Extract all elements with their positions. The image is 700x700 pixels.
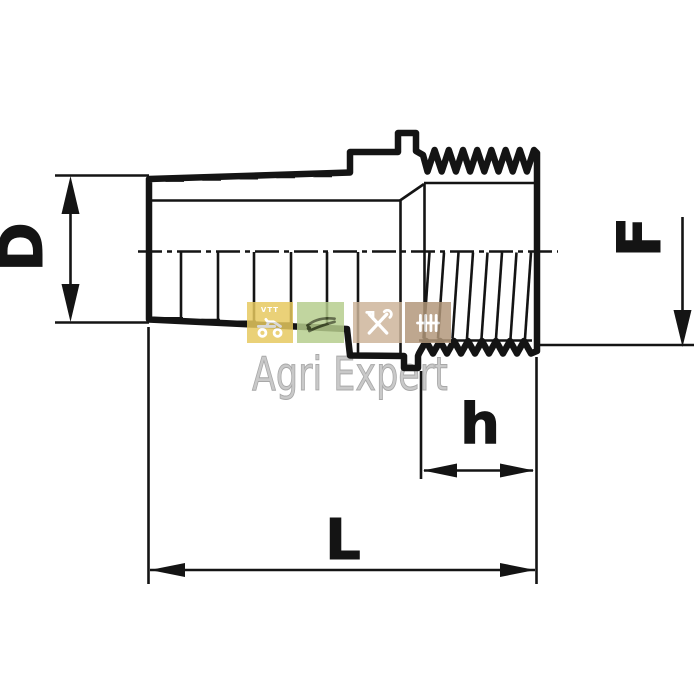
dimension-label-f: F [608,205,672,269]
dimension-label-h: h [448,392,512,456]
watermark-square-shears [297,302,344,343]
quad-bike-icon [256,315,284,339]
watermark-square-rake [405,302,451,343]
h-arrowhead-right [500,464,534,478]
f-arrowhead [674,310,692,347]
technical-drawing-page: Agri Expert [0,0,700,700]
watermark-square-quad: VTT [247,302,293,343]
dimension-label-d: D [0,215,54,279]
l-arrowhead-left [150,563,185,577]
rake-icon [414,310,442,336]
hex-chamfer-line [400,184,424,201]
watermark-square-tools [353,302,402,343]
dimension-label-l: L [311,508,375,572]
quad-square-label: VTT [261,307,279,315]
d-arrowhead-up [62,176,80,214]
fitting-drawing [0,0,700,700]
d-arrowhead-down [62,284,80,322]
pruning-shears-icon [305,310,337,336]
l-arrowhead-right [500,563,535,577]
crossed-tools-icon [363,309,393,337]
dimension-D [55,176,149,323]
h-arrowhead-left [423,464,457,478]
